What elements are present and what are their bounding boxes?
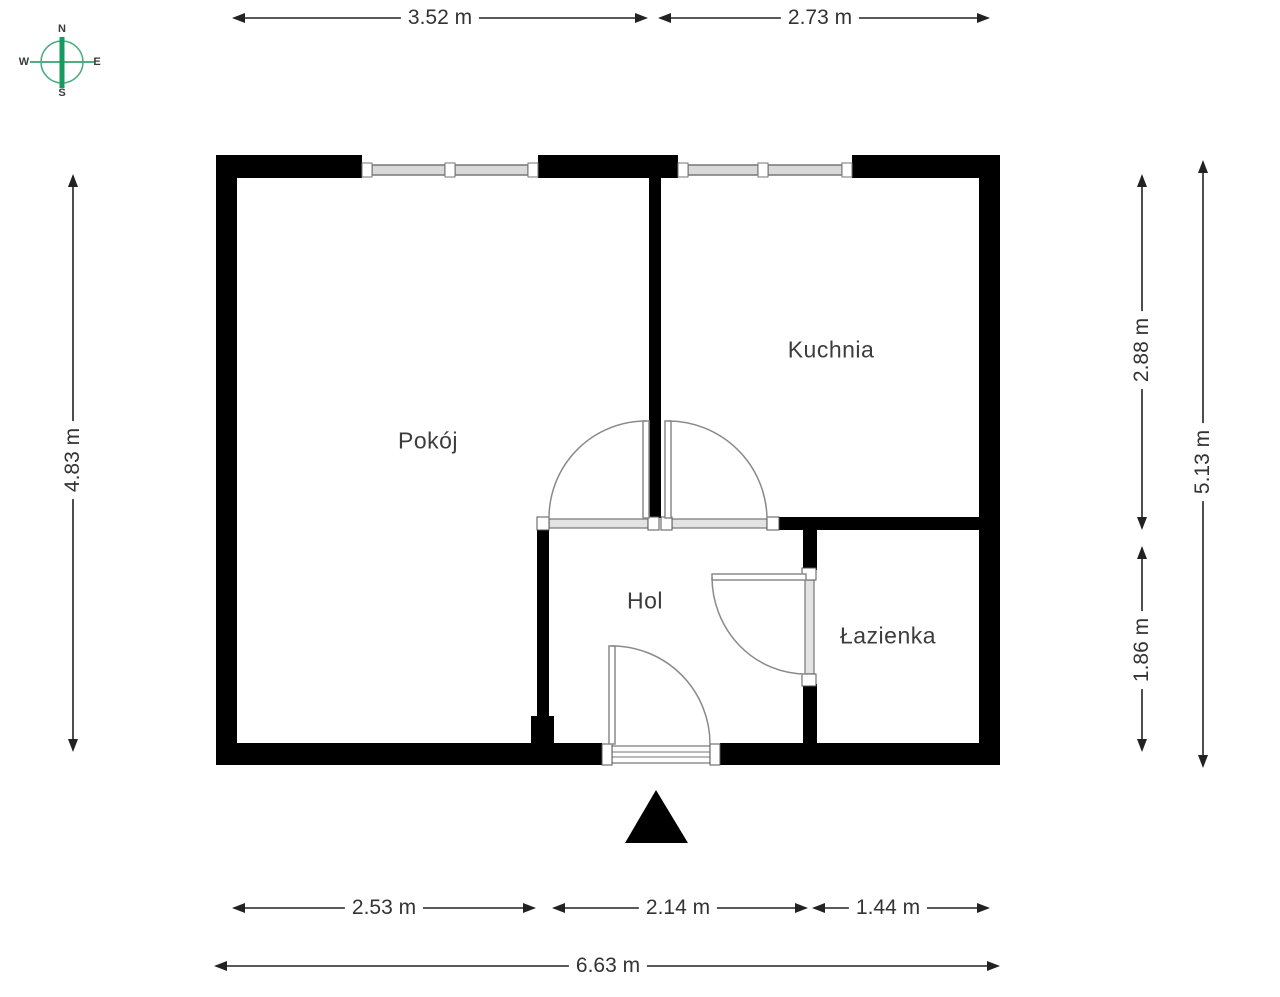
window-jamb	[362, 163, 372, 177]
window-jamb	[678, 163, 688, 177]
wall-right	[979, 155, 1000, 765]
doors	[549, 421, 806, 744]
door-jamb	[710, 744, 720, 765]
room-label-lazienka: Łazienka	[840, 623, 936, 650]
wall-bottom-right	[720, 743, 1000, 765]
wall-top-right	[852, 155, 1000, 178]
dim-label-bottom-3: 1.44 m	[849, 896, 927, 920]
window-mullion	[758, 163, 768, 177]
wall-top-middle	[538, 155, 678, 178]
dim-label-left: 4.83 m	[61, 421, 85, 499]
door-entrance	[609, 646, 710, 744]
dim-label-top-1: 3.52 m	[401, 6, 479, 30]
door-arc	[549, 421, 646, 518]
door-kuchnia	[665, 421, 767, 518]
dim-label-right-total: 5.13 m	[1191, 423, 1215, 501]
door-jamb	[802, 674, 816, 686]
room-label-kuchnia: Kuchnia	[788, 337, 875, 364]
window-kuchnia	[678, 163, 852, 177]
door-arc	[668, 421, 767, 518]
dim-label-bottom-2: 2.14 m	[639, 896, 717, 920]
door-arc	[712, 577, 806, 674]
door-jamb	[648, 517, 659, 530]
wall-bottom-left	[216, 743, 602, 765]
wall-pokoj-kuchnia	[649, 178, 661, 518]
dim-label-top-2: 2.73 m	[781, 6, 859, 30]
wall-top-left	[216, 155, 362, 178]
room-label-pokoj: Pokój	[398, 428, 458, 455]
door-lazienka	[712, 574, 806, 674]
window-jamb	[842, 163, 852, 177]
door-pokoj	[549, 421, 649, 518]
window-pokoj	[362, 163, 538, 177]
wall-hol-lazienka-upper	[803, 529, 817, 570]
thresholds	[537, 517, 816, 765]
dim-label-bottom-1: 2.53 m	[345, 896, 423, 920]
wall-left	[216, 155, 237, 765]
entrance-arrow	[625, 790, 688, 843]
floorplan-page: N S W E Pokój Kuchnia Hol Łazienka 3.52 …	[0, 0, 1280, 997]
compass-rose	[30, 37, 94, 88]
wall-hol-left-stub	[531, 716, 554, 744]
door-jamb	[537, 517, 549, 530]
dim-label-right-upper: 2.88 m	[1130, 311, 1154, 389]
wall-hol-left	[537, 529, 549, 719]
compass-north-label: N	[58, 23, 66, 35]
window-mullion	[445, 163, 455, 177]
door-arc	[612, 646, 710, 744]
compass-east-label: E	[93, 56, 100, 68]
dim-label-bottom-total: 6.63 m	[569, 954, 647, 978]
compass-west-label: W	[19, 56, 29, 68]
walls	[216, 155, 1000, 765]
wall-lazienka-top	[779, 517, 1000, 530]
door-jamb	[767, 517, 779, 530]
door-jamb	[602, 744, 612, 765]
wall-hol-lazienka-lower	[803, 684, 817, 744]
floorplan-drawing	[0, 0, 1280, 997]
door-jamb	[661, 517, 672, 530]
window-jamb	[528, 163, 538, 177]
compass-south-label: S	[58, 87, 65, 99]
dim-label-right-lower: 1.86 m	[1130, 611, 1154, 689]
room-label-hol: Hol	[627, 588, 663, 615]
